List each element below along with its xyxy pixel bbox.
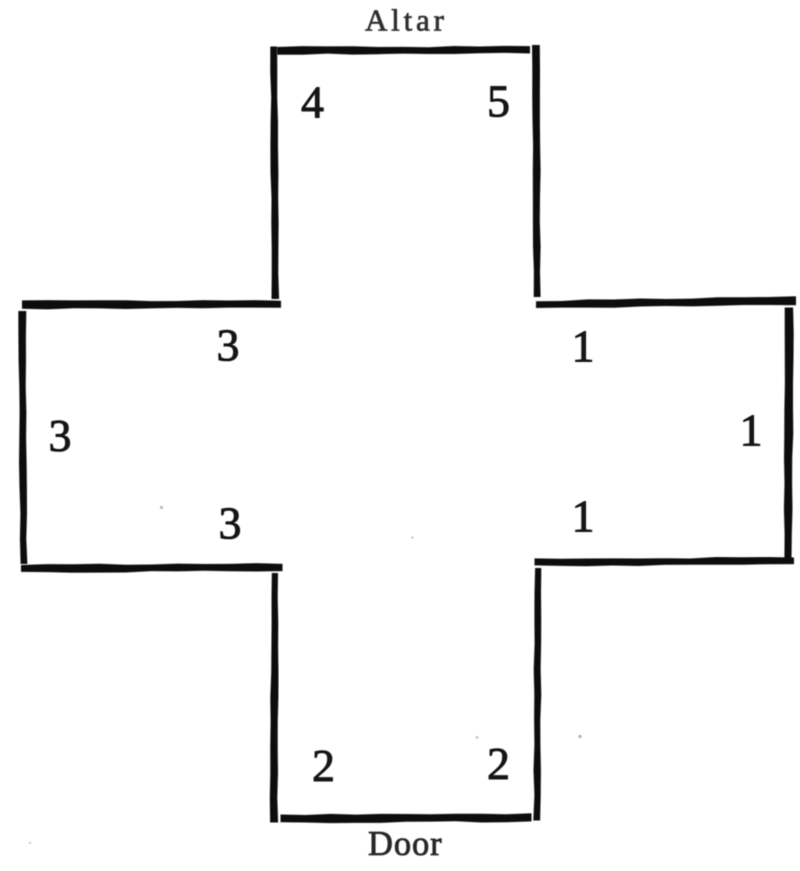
svg-text:Altar: Altar — [365, 3, 448, 38]
svg-text:2: 2 — [487, 738, 510, 789]
svg-text:3: 3 — [49, 410, 72, 461]
svg-text:1: 1 — [572, 321, 595, 372]
svg-text:Door: Door — [368, 825, 443, 863]
svg-text:2: 2 — [312, 740, 335, 791]
svg-text:1: 1 — [740, 405, 763, 456]
svg-text:4: 4 — [301, 77, 324, 128]
svg-text:5: 5 — [487, 76, 510, 127]
svg-text:1: 1 — [572, 491, 595, 542]
svg-text:3: 3 — [219, 498, 242, 549]
svg-text:3: 3 — [217, 320, 240, 371]
